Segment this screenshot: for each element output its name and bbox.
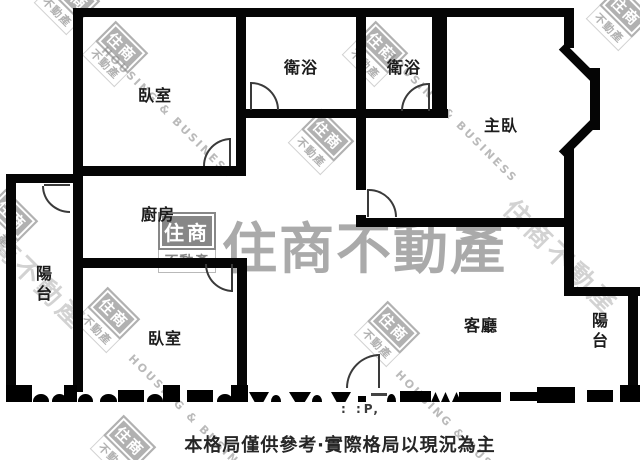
censored-mark <box>510 392 540 401</box>
door-arc <box>251 82 279 110</box>
censored-mark <box>147 394 163 402</box>
room-label-bathroom-1: 衛浴 <box>284 54 318 78</box>
door-arc <box>401 83 429 111</box>
censored-mark <box>400 391 431 402</box>
wall-bedroom1-bottom <box>73 166 246 176</box>
floor-plan: 住商 不動產 住商 不動產 住商 不動產 住商 不動產 住商 不動產 住商 不動… <box>0 0 640 460</box>
room-label-bedroom-2: 臥室 <box>148 325 182 349</box>
wall-top <box>73 8 574 17</box>
censored-mark <box>371 393 387 396</box>
censored-mark <box>271 395 281 402</box>
censored-mark <box>187 390 213 402</box>
door-leaf <box>229 138 231 166</box>
wall-bedroom2-right <box>237 258 247 388</box>
room-label-balcony-left: 陽台 <box>30 265 54 305</box>
door-arc <box>42 186 70 213</box>
wall-left-mid <box>73 166 83 392</box>
door-leaf <box>231 264 233 292</box>
door-arc <box>205 264 233 292</box>
door-leaf <box>367 189 369 217</box>
wall-bath2-right <box>432 8 447 118</box>
censored-mark <box>312 395 322 402</box>
censored-mark <box>620 385 640 402</box>
censored-mark <box>100 394 117 402</box>
censored-mark <box>231 385 248 402</box>
censored-mark <box>387 394 396 402</box>
censored-mark <box>118 390 144 402</box>
wall-living-top <box>356 218 574 227</box>
watermark-logo-rotated: 住商 不動產 <box>34 0 100 35</box>
room-label-bedroom-1: 臥室 <box>138 82 172 106</box>
room-label-living-room: 客廳 <box>464 312 498 336</box>
watermark-logo-rotated: 住商 不動產 <box>288 109 354 175</box>
door-arc <box>203 138 231 166</box>
censored-mark <box>163 385 180 402</box>
door-leaf <box>250 82 252 110</box>
room-label-balcony-right: 陽台 <box>586 312 610 352</box>
watermark-logo-rotated: 住商 不動產 <box>586 0 640 51</box>
censored-mark <box>6 385 32 402</box>
wall-balcony-right-outer <box>628 287 638 393</box>
censored-mark <box>289 392 311 402</box>
censored-mark <box>331 392 351 402</box>
door-leaf <box>428 83 430 111</box>
censored-mark <box>78 394 93 402</box>
watermark-text-cjk-diagonal: 住商不動產 <box>496 190 628 322</box>
door-arc <box>369 189 397 217</box>
wall-bedroom1-right <box>236 8 246 176</box>
wall-bay-right <box>590 68 600 130</box>
censored-mark <box>587 390 613 402</box>
censored-mark <box>64 385 77 402</box>
wall-outer-left <box>6 174 16 402</box>
room-label-kitchen: 廚房 <box>141 201 175 225</box>
room-label-bathroom-2: 衛浴 <box>387 54 421 78</box>
entrance-door-leaf <box>378 354 380 388</box>
wall-balcony-left-top <box>6 174 78 183</box>
wall-bay-upper <box>564 8 574 48</box>
entrance-door-arc <box>346 354 380 388</box>
door-leaf <box>44 184 70 186</box>
wall-bedroom1-left <box>73 8 83 176</box>
censored-mark <box>459 392 501 402</box>
censored-mark <box>249 392 269 402</box>
disclaimer-text: 本格局僅供參考‧實際格局以現況為主 <box>130 431 550 457</box>
wall-bath-divider <box>356 8 366 190</box>
censored-mark <box>431 392 440 402</box>
censored-mark <box>33 394 49 402</box>
censored-mark <box>441 392 450 402</box>
censored-residue-text: : :P, <box>341 402 381 416</box>
room-label-master-bedroom: 主臥 <box>484 112 518 136</box>
censored-mark <box>537 387 575 403</box>
